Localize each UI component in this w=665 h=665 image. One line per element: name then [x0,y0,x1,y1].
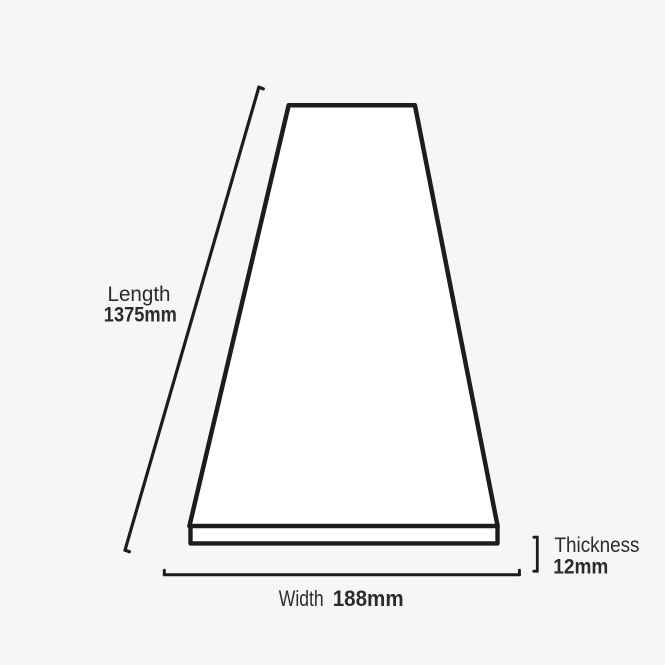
svg-text:188mm: 188mm [333,586,404,611]
svg-text:Thickness: Thickness [555,534,640,557]
svg-text:Width: Width [279,586,324,611]
svg-text:1375mm: 1375mm [104,303,177,327]
svg-text:12mm: 12mm [553,556,608,579]
